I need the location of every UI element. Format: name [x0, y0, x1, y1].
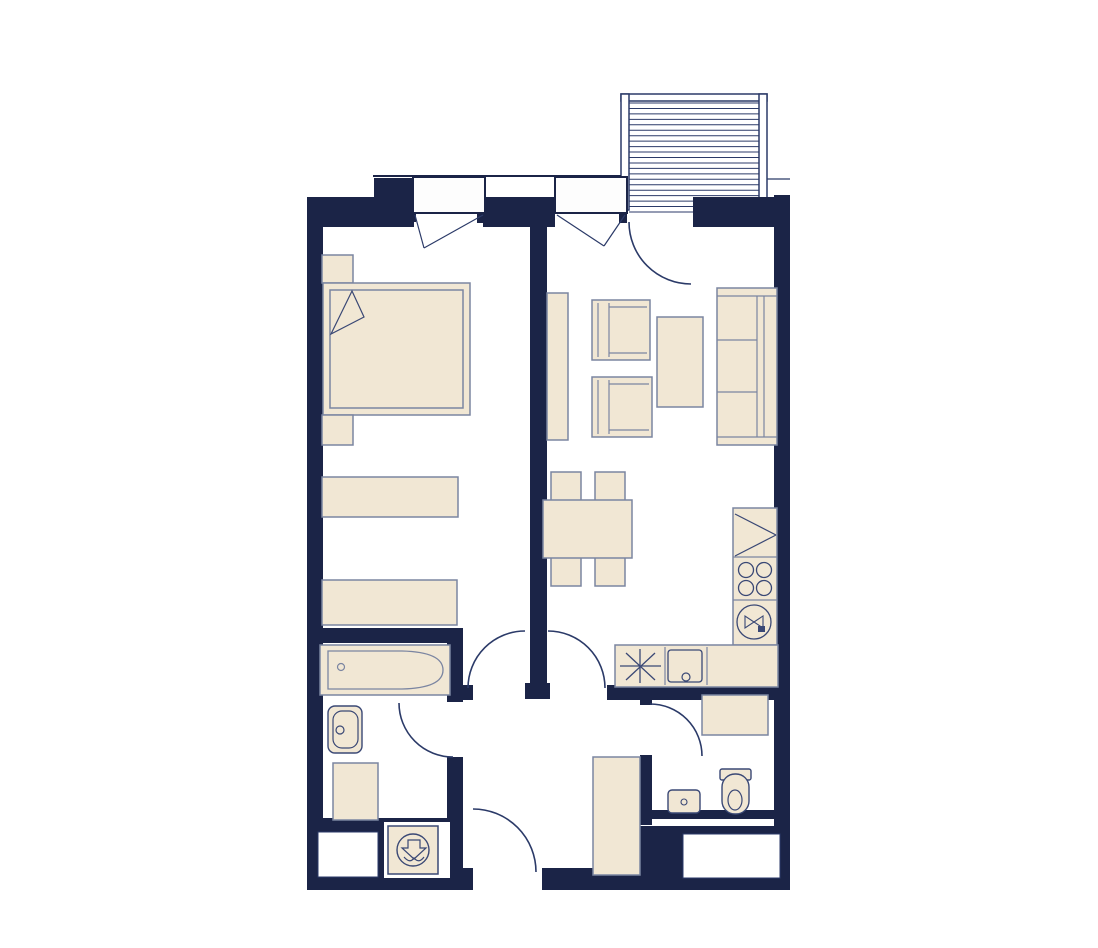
bathroom-door-jamb-1: [447, 702, 463, 705]
balcony-rail-right: [759, 94, 767, 212]
dresser-2: [322, 580, 457, 625]
window-jamb-3: [547, 212, 555, 223]
floor-plan-canvas: [0, 0, 1098, 948]
armchair-2: [592, 377, 652, 437]
hallway-wardrobe: [593, 757, 640, 875]
wall-wc-left: [640, 755, 652, 825]
window-2: [555, 177, 627, 213]
wall-partition-bedroom: [530, 227, 547, 685]
wall-partition-foot: [525, 683, 550, 699]
bathroom-window: [318, 832, 378, 877]
dining-chair-2: [595, 472, 625, 503]
living-door-arc: [548, 631, 605, 688]
window-1: [413, 177, 485, 213]
coffee-table: [657, 317, 703, 407]
wc-window: [683, 834, 780, 878]
window-2-opening-line-a: [557, 215, 604, 246]
window-1-opening-line-a: [415, 215, 424, 248]
wall-top-step: [374, 178, 414, 200]
dining-table: [543, 500, 632, 558]
entrance-door-arc: [473, 809, 536, 872]
balcony-floor-hatch: [629, 103, 760, 212]
wall-left: [307, 197, 323, 890]
wall-wc-stub: [640, 685, 652, 705]
nightstand-2: [322, 415, 353, 445]
dresser-1: [322, 477, 458, 517]
bath-cabinet: [333, 763, 378, 820]
floor-plan: [0, 0, 1098, 948]
wall-bedroom-bathroom: [318, 628, 463, 643]
wc-basin: [668, 790, 700, 813]
wall-top-mid: [483, 197, 555, 227]
wc-cabinet: [702, 695, 768, 735]
bed-frame: [323, 283, 470, 415]
kitchen-faucet-base: [758, 626, 765, 632]
armchair-1: [592, 300, 650, 360]
wc-door-arc: [650, 704, 702, 756]
toilet-bowl: [722, 774, 749, 814]
sofa: [717, 288, 777, 445]
bathroom-door-arc: [399, 703, 453, 757]
washing-machine: [388, 826, 438, 874]
balcony-door-arc: [629, 222, 691, 284]
balcony-rail-top: [621, 94, 767, 101]
wall-hall-top-left: [447, 685, 473, 700]
bedroom-door-arc: [468, 631, 525, 688]
window-2-opening-line-b: [604, 215, 625, 246]
tv-stand: [547, 293, 568, 440]
nightstand-1: [322, 255, 353, 283]
wall-top-a: [307, 197, 414, 227]
window-1-opening-line-b: [424, 215, 483, 248]
entrance-opening: [473, 866, 542, 890]
